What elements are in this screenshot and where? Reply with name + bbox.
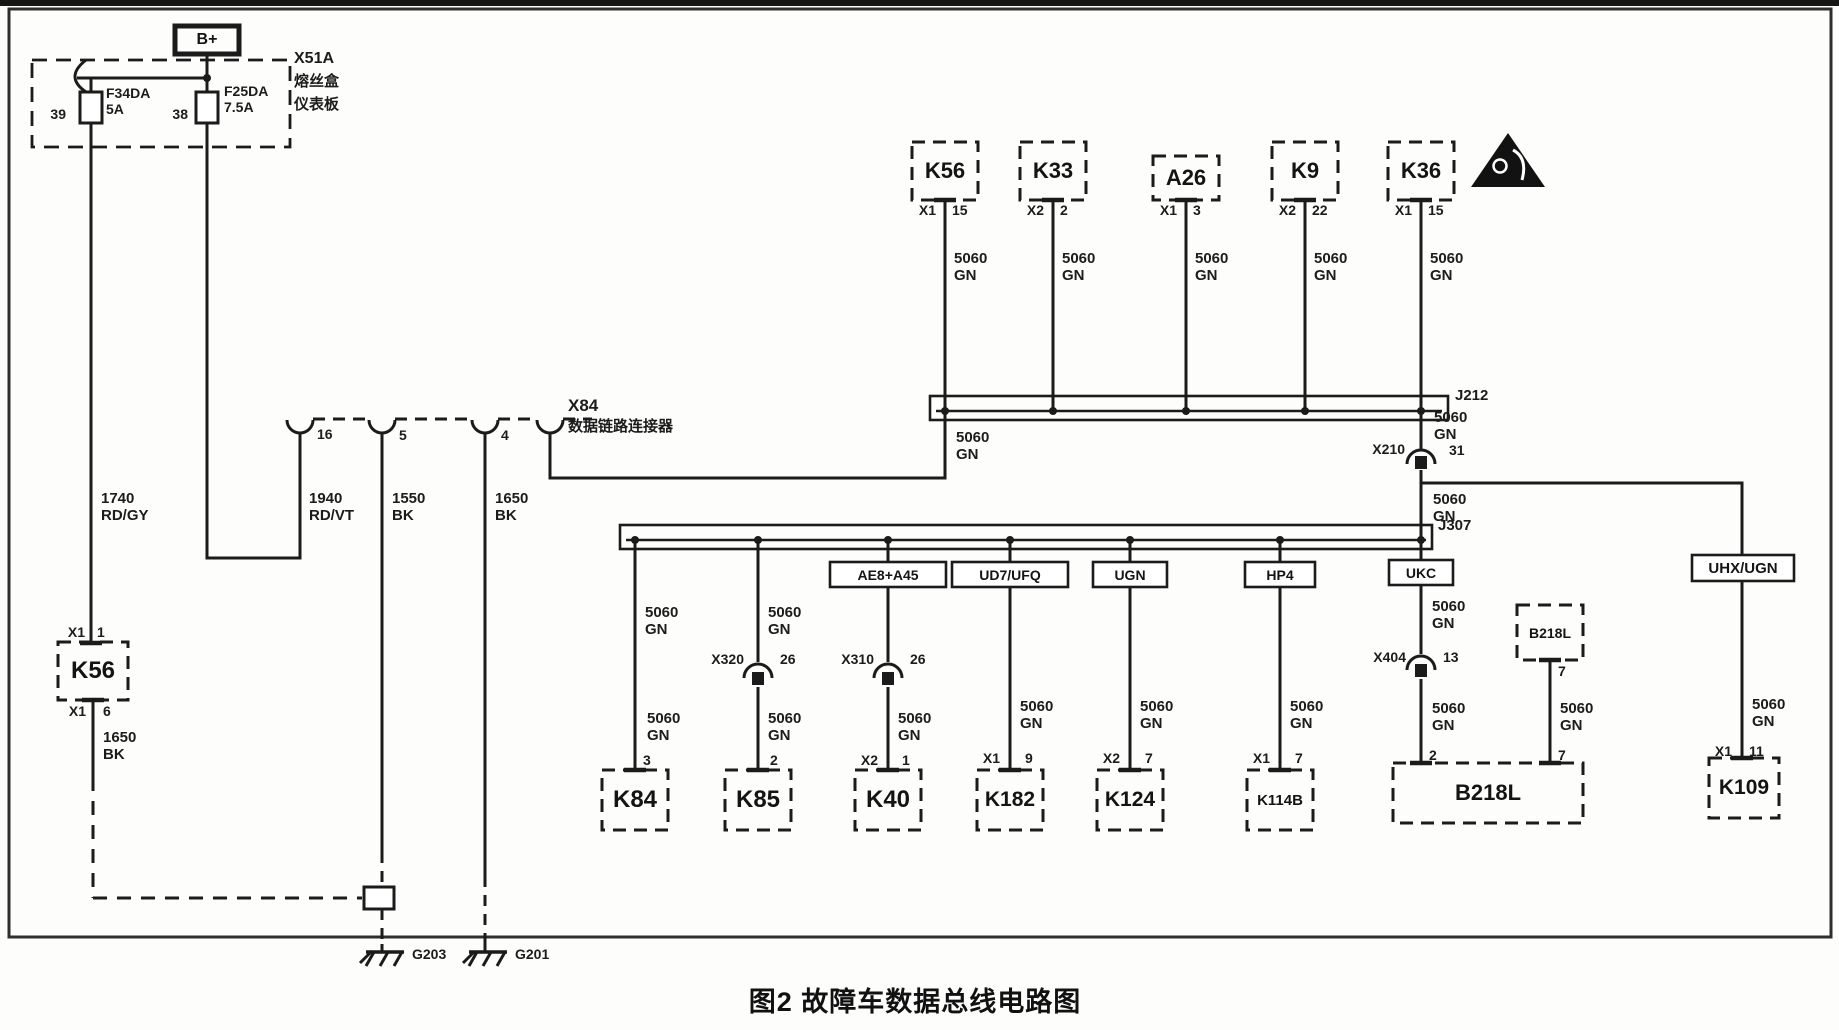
k56-left-pin-bot: 6 bbox=[103, 703, 111, 719]
connector-x320-id: X320 bbox=[698, 651, 744, 667]
wire-1650-k56-label: 1650 BK bbox=[103, 729, 157, 764]
connector-x210-symbol bbox=[1407, 411, 1435, 540]
tag-ud7-ufq: UD7/UFQ bbox=[952, 562, 1068, 587]
k109-conn: X1 bbox=[1700, 743, 1732, 759]
bus-j307-symbol bbox=[620, 525, 1432, 549]
module-k85-label: K85 bbox=[725, 770, 791, 830]
wire-bus-k124: 5060 GN bbox=[1140, 698, 1194, 733]
k56-top-pin: 15 bbox=[952, 202, 968, 218]
tag-ugn: UGN bbox=[1093, 562, 1167, 587]
wire-bus-k33: 5060 GN bbox=[1062, 250, 1116, 285]
wire-bus-k182: 5060 GN bbox=[1020, 698, 1074, 733]
connector-x310-pin: 26 bbox=[910, 651, 926, 667]
b218l-pin-left: 2 bbox=[1429, 747, 1437, 763]
wire-1940-rdvt bbox=[207, 123, 300, 558]
connector-x404-id: X404 bbox=[1360, 649, 1406, 665]
wire-bus-k84-lower: 5060 GN bbox=[647, 710, 701, 745]
wire-bus-ukc-upper: 5060 GN bbox=[1432, 598, 1486, 633]
connector-x404-pin: 13 bbox=[1443, 649, 1459, 665]
tag-hp4: HP4 bbox=[1245, 562, 1315, 587]
module-k9-label: K9 bbox=[1272, 142, 1338, 200]
b218l-small-pin: 7 bbox=[1558, 663, 1566, 679]
module-k36-label: K36 bbox=[1388, 142, 1454, 200]
terminal-hook-icon bbox=[75, 60, 86, 92]
a26-conn: X1 bbox=[1145, 202, 1177, 218]
dlc-x84-name: 数据链路连接器 bbox=[568, 418, 673, 435]
module-k114b-label: K114B bbox=[1247, 770, 1313, 830]
ground-g203-label: G203 bbox=[412, 946, 446, 962]
splice-box-symbol bbox=[364, 887, 394, 909]
module-k124-label: K124 bbox=[1097, 770, 1163, 830]
dlc-pin-4: 4 bbox=[501, 427, 509, 443]
wire-bus-k85-lower: 5060 GN bbox=[768, 710, 822, 745]
k56-left-conn-top: X1 bbox=[53, 624, 85, 640]
bus-j212-label: J212 bbox=[1455, 387, 1488, 404]
wire-bus-k85-upper: 5060 GN bbox=[768, 604, 822, 639]
wire-bus-k114b: 5060 GN bbox=[1290, 698, 1344, 733]
wire-1550-label: 1550 BK bbox=[392, 490, 446, 525]
module-k84-label: K84 bbox=[602, 770, 668, 830]
wire-bus-b218l: 5060 GN bbox=[1560, 700, 1614, 735]
ground-g201-label: G201 bbox=[515, 946, 549, 962]
battery-feed-label: B+ bbox=[175, 26, 239, 54]
k56-left-conn-bot: X1 bbox=[54, 703, 86, 719]
wire-1650-dlc-label: 1650 BK bbox=[495, 490, 549, 525]
k56-left-pin-top: 1 bbox=[97, 624, 105, 640]
module-b218l-label: B218L bbox=[1393, 763, 1583, 823]
k124-conn: X2 bbox=[1088, 750, 1120, 766]
wire-bus-x210-above: 5060 GN bbox=[1434, 409, 1488, 444]
wire-1940-label: 1940 RD/VT bbox=[309, 490, 363, 525]
scan-top-edge bbox=[0, 0, 1839, 6]
module-a26-label: A26 bbox=[1153, 156, 1219, 200]
airbag-warning-icon bbox=[1471, 133, 1545, 187]
wire-1740-label: 1740 RD/GY bbox=[101, 490, 155, 525]
k9-pin: 22 bbox=[1312, 202, 1328, 218]
module-k33-label: K33 bbox=[1020, 142, 1086, 200]
dlc-x84-id: X84 bbox=[568, 396, 598, 416]
module-k56-top-label: K56 bbox=[912, 142, 978, 200]
ground-g203-symbol bbox=[360, 944, 404, 966]
k84-pin: 3 bbox=[643, 752, 651, 768]
connector-x210-id: X210 bbox=[1359, 441, 1405, 457]
fuse-f25da-symbol bbox=[196, 92, 218, 123]
wire-bus-k109: 5060 GN bbox=[1752, 696, 1806, 731]
k33-conn: X2 bbox=[1012, 202, 1044, 218]
fuse-f34da-label: F34DA 5A bbox=[106, 85, 164, 117]
k114b-conn: X1 bbox=[1238, 750, 1270, 766]
tag-uhx-ugn: UHX/UGN bbox=[1692, 555, 1794, 581]
figure-title: 图2 故障车数据总线电路图 bbox=[615, 980, 1215, 1019]
wire-bus-k84-upper: 5060 GN bbox=[645, 604, 699, 639]
k85-pin: 2 bbox=[770, 752, 778, 768]
module-b218l-small-label: B218L bbox=[1517, 605, 1583, 660]
dlc-pin-16: 16 bbox=[317, 426, 333, 442]
k40-pin: 1 bbox=[902, 752, 910, 768]
wire-bus-ukc-lower: 5060 GN bbox=[1432, 700, 1486, 735]
bus-j307-label: J307 bbox=[1438, 517, 1471, 534]
k9-conn: X2 bbox=[1264, 202, 1296, 218]
k40-conn: X2 bbox=[846, 752, 878, 768]
k114b-pin: 7 bbox=[1295, 750, 1303, 766]
k182-pin: 9 bbox=[1025, 750, 1033, 766]
bus-j212-symbol bbox=[930, 396, 1448, 420]
wire-bus-k9: 5060 GN bbox=[1314, 250, 1368, 285]
tag-ukc: UKC bbox=[1389, 560, 1453, 585]
fuse-f25da-label: F25DA 7.5A bbox=[224, 83, 282, 115]
connector-x210-pin: 31 bbox=[1449, 442, 1465, 458]
fuse-f34da-symbol bbox=[80, 92, 102, 123]
a26-pin: 3 bbox=[1193, 202, 1201, 218]
k182-conn: X1 bbox=[968, 750, 1000, 766]
fusebox-desc2: 仪表板 bbox=[294, 96, 339, 113]
wire-bus-k56: 5060 GN bbox=[954, 250, 1008, 285]
connector-x310-id: X310 bbox=[828, 651, 874, 667]
k36-pin: 15 bbox=[1428, 202, 1444, 218]
module-k109-label: K109 bbox=[1709, 758, 1779, 818]
wire-bus-dlc-riser: 5060 GN bbox=[956, 429, 1010, 464]
dlc-pin-5: 5 bbox=[399, 427, 407, 443]
fuse-f25da-pin: 38 bbox=[164, 106, 188, 122]
wiring-diagram-page: B+ X51A 熔丝盒 仪表板 F34DA 5A 39 F25DA 7.5A 3… bbox=[0, 0, 1839, 1030]
k36-conn: X1 bbox=[1380, 202, 1412, 218]
wire-bus-k40: 5060 GN bbox=[898, 710, 952, 745]
fusebox-desc1: 熔丝盒 bbox=[294, 73, 339, 90]
module-k40-label: K40 bbox=[855, 770, 921, 830]
b218l-pin-right: 7 bbox=[1558, 747, 1566, 763]
k33-pin: 2 bbox=[1060, 202, 1068, 218]
k56-top-conn: X1 bbox=[904, 202, 936, 218]
k124-pin: 7 bbox=[1145, 750, 1153, 766]
module-k56-left-label: K56 bbox=[58, 642, 128, 700]
wire-bus-k36: 5060 GN bbox=[1430, 250, 1484, 285]
module-k182-label: K182 bbox=[977, 770, 1043, 830]
k109-pin: 11 bbox=[1749, 743, 1764, 759]
fusebox-id: X51A bbox=[294, 50, 334, 69]
wire-bus-a26: 5060 GN bbox=[1195, 250, 1249, 285]
ground-g201-symbol bbox=[463, 944, 507, 966]
fuse-f34da-pin: 39 bbox=[42, 106, 66, 122]
tag-ae8-a45: AE8+A45 bbox=[830, 562, 946, 587]
connector-x320-pin: 26 bbox=[780, 651, 796, 667]
